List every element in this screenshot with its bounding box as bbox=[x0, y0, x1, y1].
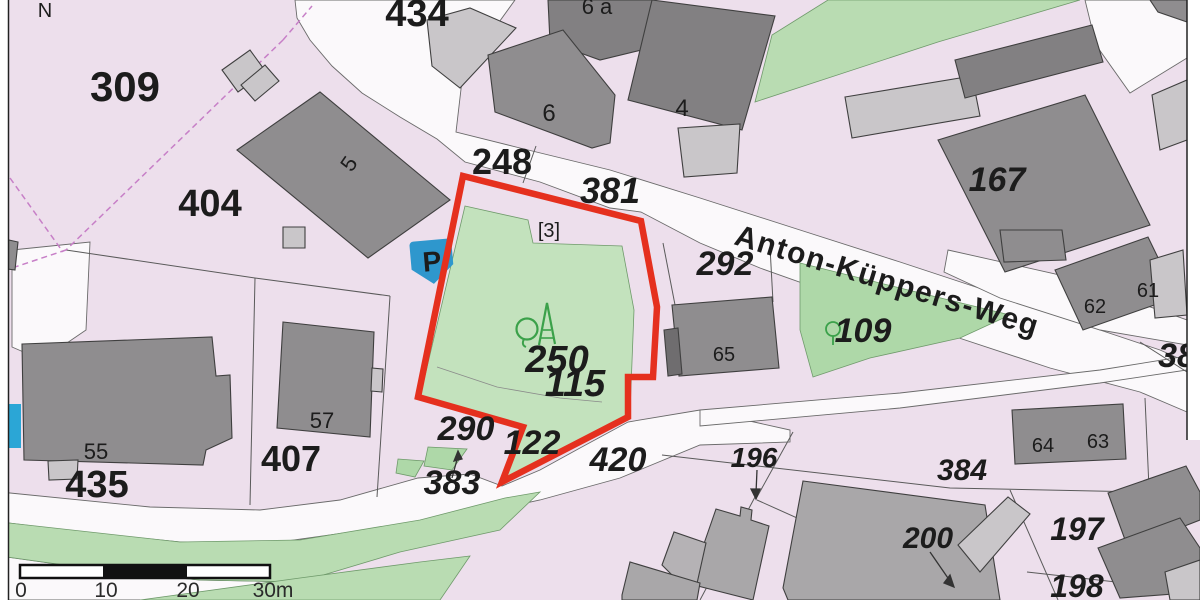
house-number-61: 61 bbox=[1137, 280, 1159, 302]
parcel-label-407: 407 bbox=[261, 438, 321, 479]
blue-edge-marker bbox=[8, 404, 21, 448]
scale-tick-20: 20 bbox=[176, 579, 199, 600]
house-number-65: 65 bbox=[713, 344, 735, 366]
building-4-annex bbox=[678, 124, 740, 177]
parcel-label-197: 197 bbox=[1050, 511, 1106, 547]
building-57-annex bbox=[371, 368, 383, 392]
parcel-label-3: [3] bbox=[538, 220, 560, 242]
building-62-annex bbox=[1000, 230, 1066, 262]
house-number-63: 63 bbox=[1087, 431, 1109, 453]
parcel-label-435: 435 bbox=[65, 464, 128, 506]
scale-bar-segment bbox=[103, 565, 187, 578]
scale-tick-30: 30m bbox=[253, 579, 294, 600]
building-55 bbox=[22, 337, 232, 465]
parcel-label-109: 109 bbox=[835, 312, 892, 350]
parcel-label-309: 309 bbox=[90, 63, 160, 110]
map-canvas: P N 434 309 404 248 381 [3] 292 167 109 … bbox=[0, 0, 1200, 600]
right-margin bbox=[1187, 0, 1200, 440]
parcel-label-290: 290 bbox=[437, 410, 495, 448]
cadastral-map: P N 434 309 404 248 381 [3] 292 167 109 … bbox=[0, 0, 1200, 600]
parcel-label-381: 381 bbox=[580, 170, 640, 211]
parcel-label-434: 434 bbox=[385, 0, 448, 35]
house-number-6a: 6 a bbox=[582, 0, 613, 19]
parcel-label-200: 200 bbox=[902, 522, 953, 555]
house-number-4: 4 bbox=[675, 95, 688, 122]
house-number-57: 57 bbox=[310, 408, 334, 433]
parcel-label-198: 198 bbox=[1050, 568, 1104, 600]
parcel-label-383: 383 bbox=[424, 464, 481, 502]
parking-symbol-label: P bbox=[421, 245, 442, 278]
parcel-label-248: 248 bbox=[472, 141, 532, 182]
scale-tick-0: 0 bbox=[15, 579, 27, 600]
parcel-label-115: 115 bbox=[545, 363, 606, 405]
building-5-annex bbox=[283, 227, 305, 248]
parcel-label-420: 420 bbox=[589, 441, 647, 479]
north-indicator: N bbox=[38, 0, 52, 22]
parcel-label-384: 384 bbox=[937, 454, 987, 487]
parcel-label-404: 404 bbox=[178, 183, 241, 225]
house-number-62: 62 bbox=[1084, 296, 1106, 318]
house-number-64: 64 bbox=[1032, 435, 1054, 457]
house-number-55: 55 bbox=[84, 439, 108, 464]
parcel-label-167: 167 bbox=[969, 161, 1028, 199]
house-number-6: 6 bbox=[542, 100, 555, 127]
scale-tick-10: 10 bbox=[94, 579, 117, 600]
parcel-label-122: 122 bbox=[504, 424, 561, 462]
parcel-label-196: 196 bbox=[731, 442, 778, 473]
left-margin bbox=[0, 0, 8, 600]
